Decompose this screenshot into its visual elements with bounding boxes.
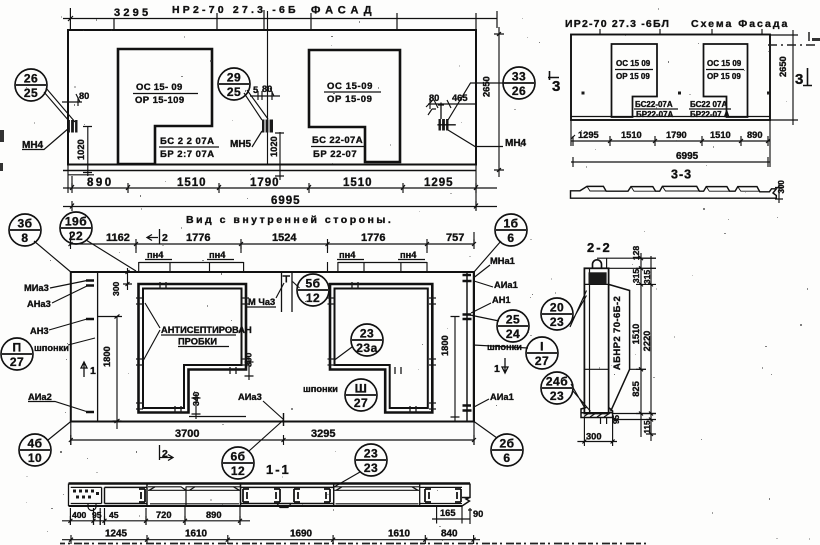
svg-text:3: 3 (552, 78, 560, 95)
svg-text:2: 2 (162, 232, 168, 244)
svg-text:20: 20 (550, 301, 564, 315)
svg-text:БС 2 2 07А: БС 2 2 07А (160, 136, 214, 147)
svg-text:1-1: 1-1 (266, 462, 291, 477)
svg-text:2: 2 (162, 448, 168, 460)
svg-text:БС 22-07А: БС 22-07А (312, 135, 363, 146)
svg-text:300: 300 (586, 432, 602, 442)
svg-text:1776: 1776 (186, 232, 210, 244)
svg-text:2650: 2650 (778, 56, 788, 77)
svg-text:ПРОБКИ: ПРОБКИ (178, 337, 217, 347)
svg-text:5б: 5б (305, 277, 320, 291)
svg-text:П: П (12, 341, 21, 355)
svg-text:27: 27 (354, 396, 368, 410)
svg-text:ОР 15-109: ОР 15-109 (135, 95, 185, 106)
svg-text:БС22-07А: БС22-07А (635, 100, 673, 109)
svg-text:720: 720 (156, 510, 172, 520)
svg-text:6995: 6995 (271, 195, 301, 207)
svg-text:МИа3: МИа3 (24, 283, 49, 293)
svg-text:МНа1: МНа1 (490, 256, 515, 266)
svg-text:6б: 6б (230, 450, 245, 464)
svg-text:33: 33 (512, 70, 526, 84)
svg-text:400: 400 (72, 510, 87, 520)
svg-text:465: 465 (452, 93, 468, 103)
svg-text:I: I (540, 340, 544, 354)
svg-text:пн4: пн4 (400, 250, 417, 260)
svg-text:890: 890 (747, 130, 763, 140)
svg-text:26: 26 (24, 72, 38, 86)
svg-text:23: 23 (550, 389, 564, 403)
svg-text:МН5: МН5 (230, 139, 252, 150)
svg-text:1: 1 (90, 365, 96, 377)
svg-text:1020: 1020 (269, 136, 279, 157)
svg-text:24: 24 (506, 327, 520, 341)
svg-text:3-3: 3-3 (671, 168, 692, 182)
svg-text:29: 29 (227, 71, 241, 85)
svg-text:1800: 1800 (440, 335, 450, 356)
svg-text:6995: 6995 (676, 151, 699, 162)
svg-text:80: 80 (79, 91, 89, 101)
svg-text:757: 757 (446, 232, 464, 244)
svg-text:27: 27 (10, 355, 24, 369)
svg-text:95: 95 (612, 415, 621, 424)
svg-text:300: 300 (777, 180, 786, 194)
svg-text:1610: 1610 (185, 529, 207, 540)
svg-text:12: 12 (231, 464, 245, 478)
svg-text:315: 315 (631, 269, 641, 284)
svg-text:АИа1: АИа1 (490, 392, 514, 402)
svg-text:БР 22-07: БР 22-07 (313, 149, 357, 160)
svg-text:3295: 3295 (114, 7, 151, 19)
svg-text:пн4: пн4 (147, 250, 164, 260)
svg-text:23: 23 (550, 315, 564, 329)
svg-text:4б: 4б (27, 437, 42, 451)
svg-text:25: 25 (24, 86, 38, 100)
svg-text:300: 300 (111, 281, 121, 296)
svg-text:АИа2: АИа2 (28, 392, 52, 402)
svg-text:12: 12 (306, 291, 320, 305)
svg-text:НР2-70 27.3 -6Б: НР2-70 27.3 -6Б (172, 4, 299, 16)
svg-text:1162: 1162 (106, 232, 130, 244)
svg-text:2650: 2650 (482, 76, 492, 97)
svg-text:23: 23 (364, 447, 378, 461)
svg-text:2-2: 2-2 (587, 240, 612, 255)
svg-text:26: 26 (512, 84, 526, 98)
svg-text:128: 128 (631, 246, 641, 261)
svg-text:90: 90 (473, 509, 483, 519)
svg-text:М Ча3: М Ча3 (248, 297, 275, 307)
svg-text:1610: 1610 (388, 529, 410, 540)
svg-text:23: 23 (360, 327, 374, 341)
svg-text:890: 890 (87, 177, 114, 189)
svg-text:45: 45 (109, 510, 119, 520)
svg-text:24б: 24б (546, 375, 568, 389)
svg-text:890: 890 (206, 510, 222, 520)
svg-text:1020: 1020 (76, 139, 86, 160)
svg-text:8: 8 (21, 231, 28, 245)
svg-text:Схема Фасада: Схема Фасада (691, 18, 789, 30)
svg-text:1295: 1295 (578, 130, 599, 140)
svg-text:3б: 3б (17, 217, 32, 231)
svg-text:1510: 1510 (710, 130, 731, 140)
svg-text:2б: 2б (499, 437, 514, 451)
svg-text:1776: 1776 (361, 232, 385, 244)
svg-text:1245: 1245 (105, 529, 127, 540)
svg-text:23а: 23а (356, 341, 378, 355)
svg-text:6: 6 (503, 451, 510, 465)
svg-text:19б: 19б (65, 215, 87, 229)
svg-text:АН3: АН3 (30, 326, 49, 336)
svg-text:АИа1: АИа1 (494, 280, 518, 290)
svg-text:МН4: МН4 (505, 138, 527, 149)
svg-text:23: 23 (364, 461, 378, 475)
svg-text:АНа3: АНа3 (27, 299, 51, 309)
svg-text:25: 25 (227, 85, 241, 99)
svg-text:95: 95 (92, 510, 102, 520)
svg-text:БР22-07 А: БР22-07 А (690, 110, 730, 119)
svg-text:пн4: пн4 (339, 250, 356, 260)
svg-text:АН1: АН1 (492, 295, 511, 305)
svg-text:ОР 15 09: ОР 15 09 (616, 72, 650, 81)
svg-text:1800: 1800 (102, 346, 112, 367)
svg-text:АНТИСЕПТИРОВАН: АНТИСЕПТИРОВАН (161, 325, 252, 335)
svg-text:ФАСАД: ФАСАД (311, 5, 377, 17)
svg-text:1510: 1510 (621, 130, 642, 140)
svg-text:1: 1 (494, 363, 500, 375)
svg-text:БС22 07А: БС22 07А (690, 100, 727, 109)
svg-text:БР22-07А: БР22-07А (636, 110, 674, 119)
svg-text:115: 115 (643, 420, 652, 433)
svg-text:шпонки: шпонки (303, 384, 338, 394)
svg-text:1790: 1790 (666, 130, 687, 140)
svg-text:2220: 2220 (642, 331, 652, 352)
svg-text:825: 825 (631, 381, 641, 397)
svg-text:3700: 3700 (175, 428, 199, 440)
svg-text:АБНР2 70-6Б-2: АБНР2 70-6Б-2 (612, 296, 623, 370)
svg-text:пн4: пн4 (209, 250, 226, 260)
svg-text:ОС 15- 09: ОС 15- 09 (136, 82, 183, 93)
svg-text:315: 315 (642, 270, 652, 285)
svg-text:ОС 15 09: ОС 15 09 (616, 59, 651, 68)
svg-text:шпонки: шпонки (34, 343, 69, 353)
svg-text:22: 22 (69, 229, 83, 243)
svg-text:3295: 3295 (311, 428, 335, 440)
svg-text:ОР 15-09: ОР 15-09 (327, 94, 372, 105)
svg-text:1б: 1б (503, 217, 518, 231)
svg-text:1510: 1510 (631, 324, 641, 345)
svg-text:3: 3 (795, 71, 803, 88)
svg-text:Вид с внутренней стороны.: Вид с внутренней стороны. (186, 214, 393, 226)
svg-text:6: 6 (507, 231, 514, 245)
svg-text:165: 165 (440, 508, 456, 518)
svg-text:АИа3: АИа3 (238, 392, 262, 402)
svg-text:ОР 15 09: ОР 15 09 (707, 72, 741, 81)
svg-text:ОС 15-09: ОС 15-09 (327, 81, 373, 92)
svg-text:27: 27 (535, 354, 549, 368)
svg-text:1510: 1510 (343, 177, 373, 189)
svg-text:10: 10 (28, 451, 42, 465)
svg-text:25: 25 (506, 313, 520, 327)
svg-text:840: 840 (441, 529, 458, 540)
svg-text:ОС 15 09: ОС 15 09 (707, 59, 742, 68)
svg-text:1524: 1524 (272, 232, 297, 244)
svg-text:1790: 1790 (250, 177, 280, 189)
svg-text:БР 2:7 07А: БР 2:7 07А (160, 149, 215, 160)
svg-text:ИР2-70 27.3 -6БЛ: ИР2-70 27.3 -6БЛ (565, 18, 670, 30)
svg-text:5: 5 (253, 85, 258, 95)
svg-text:1510: 1510 (177, 177, 207, 189)
svg-text:1690: 1690 (290, 529, 312, 540)
svg-text:1295: 1295 (424, 177, 454, 189)
svg-text:Ш: Ш (355, 382, 368, 396)
